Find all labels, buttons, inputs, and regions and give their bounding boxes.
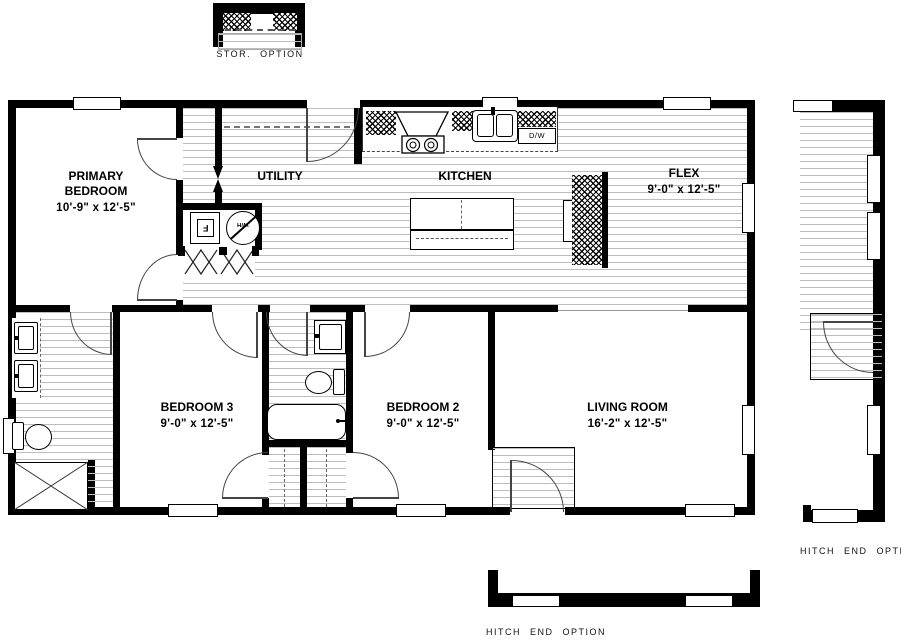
bedroom2-closet-door-leaf xyxy=(353,497,399,499)
bedroom3-label: BEDROOM 3 9'-0" x 12'-5" xyxy=(127,400,267,432)
storage-option-label: STOR. OPTION xyxy=(205,49,315,59)
bath2-door-leaf xyxy=(306,312,308,356)
hitch-right-window-1 xyxy=(867,155,881,203)
storage-option-door-dashed-line xyxy=(225,29,295,31)
kitchen-faucet-icon xyxy=(491,107,495,115)
bedroom2-door-leaf xyxy=(364,312,366,357)
utility-name: UTILITY xyxy=(210,169,350,184)
hitch-right-bottom-window xyxy=(812,509,858,523)
primary-bedroom-wall-mid xyxy=(176,180,183,255)
kitchen-counter-hatch-1 xyxy=(366,111,396,135)
flex-dims: 9'-0" x 12'-5" xyxy=(614,183,754,198)
closet-divider-wall xyxy=(300,445,307,515)
bedroom3-door-arc xyxy=(212,312,258,358)
living-room-label: LIVING ROOM 16'-2" x 12'-5" xyxy=(545,400,710,432)
hitch-right-floor xyxy=(800,112,873,330)
bath2-faucet xyxy=(315,334,319,338)
bedroom2-label: BEDROOM 2 9'-0" x 12'-5" xyxy=(353,400,493,432)
flex-label: FLEX 9'-0" x 12'-5" xyxy=(614,166,754,198)
dishwasher: D/W xyxy=(518,128,556,144)
water-heater-label: W/H xyxy=(227,221,259,227)
bath-bedroom3-wall xyxy=(113,312,120,507)
bath2-toilet-tank xyxy=(333,369,345,395)
primary-bedroom-door-upper-leaf xyxy=(137,138,177,140)
primary-bedroom-door-lower-arc xyxy=(137,254,177,300)
hitch-bottom-stub-right xyxy=(750,570,760,593)
kitchen-island-dashed-front xyxy=(416,238,508,239)
bathroom-door-leaf xyxy=(110,312,112,355)
living-room-dims: 16'-2" x 12'-5" xyxy=(545,417,710,432)
entry-door-leaf xyxy=(510,460,512,512)
primary-bedroom-label: PRIMARY BEDROOM 10'-9" x 12'-5" xyxy=(26,169,166,216)
primary-bedroom-name-line1: PRIMARY xyxy=(26,169,166,184)
outer-wall-bottom xyxy=(8,507,755,515)
kitchen-label: KITCHEN xyxy=(395,169,535,184)
flex-top-window xyxy=(663,97,711,110)
flex-name: FLEX xyxy=(614,166,754,181)
kitchen-sink-basin-right xyxy=(496,114,513,137)
primary-bedroom-dims: 10'-9" x 12'-5" xyxy=(26,201,166,216)
bath2-bedroom2-wall-lower xyxy=(346,498,353,515)
shower-x-icon xyxy=(14,462,88,510)
primary-bedroom-wall-upper xyxy=(176,100,183,138)
living-room-name: LIVING ROOM xyxy=(545,400,710,415)
kitchen-sink-basin-left xyxy=(477,114,494,137)
flex-cabinet-back-panel xyxy=(602,172,608,268)
utility-exterior-door-leaf xyxy=(306,108,308,162)
kitchen-island xyxy=(410,198,514,250)
bath-sink-1-faucet xyxy=(15,336,19,340)
bedroom2-window xyxy=(396,504,446,517)
bedroom2-name: BEDROOM 2 xyxy=(353,400,493,415)
hitch-right-label: HITCH END OPTION xyxy=(800,546,901,556)
hall-wall-seg3 xyxy=(258,305,270,312)
utility-door-gap xyxy=(307,100,360,108)
bath-toilet-bowl xyxy=(25,424,52,450)
hitch-right-window-3 xyxy=(867,405,881,455)
hall-wall-seg2 xyxy=(112,305,212,312)
bedroom3-name: BEDROOM 3 xyxy=(127,400,267,415)
hall-wall-seg1 xyxy=(8,305,70,312)
bath-sink-2-basin xyxy=(18,364,34,388)
kitchen-island-dashed-split xyxy=(461,200,462,229)
bedroom3-door-leaf xyxy=(256,312,258,358)
bifold-jamb-mid xyxy=(219,247,227,255)
utility-label: UTILITY xyxy=(210,169,350,184)
bedroom3-closet-door-leaf xyxy=(222,497,268,499)
hall-wall-seg6 xyxy=(688,305,747,312)
living-bottom-window xyxy=(685,504,735,517)
hitch-bottom-window-1 xyxy=(512,595,560,607)
hitch-right-window-2 xyxy=(867,212,881,260)
flex-cabinet-crosshatch xyxy=(572,175,603,265)
living-right-window xyxy=(742,405,755,455)
primary-bedroom-window xyxy=(73,97,121,110)
bath-toilet-tank xyxy=(12,422,24,450)
dishwasher-label: D/W xyxy=(529,131,545,140)
bathtub-faucet-spout xyxy=(340,420,346,422)
bath2-toilet-bowl xyxy=(305,371,332,394)
bifold-jamb-right xyxy=(252,246,259,256)
floor-plan: STOR. OPTION F W/H xyxy=(0,0,901,642)
hitch-right-top-window xyxy=(793,100,833,112)
primary-closet-wall-lower xyxy=(215,190,222,206)
water-heater-strike xyxy=(226,213,260,244)
bath2-bedroom2-wall-upper xyxy=(346,312,353,453)
hitch-right-entry-door-leaf xyxy=(823,321,873,323)
bedroom3-closet-rod xyxy=(284,449,285,507)
hitch-bottom-window-2 xyxy=(685,595,733,607)
bedroom2-closet-rod xyxy=(326,449,327,507)
hall-wall-seg5 xyxy=(410,305,558,312)
water-heater: W/H xyxy=(226,211,260,245)
bedroom2-door-arc xyxy=(365,312,410,357)
hitch-right-bottom-stub xyxy=(803,505,811,522)
bedroom2-dims: 9'-0" x 12'-5" xyxy=(353,417,493,432)
hall-wall-seg4 xyxy=(310,305,365,312)
furnace-inner: F xyxy=(197,219,214,237)
tub-bottom-wall xyxy=(266,440,346,447)
kitchen-counter-hatch-3 xyxy=(518,111,556,127)
bathtub xyxy=(267,404,346,440)
kitchen-name: KITCHEN xyxy=(395,169,535,184)
bath-vanity-edge xyxy=(40,318,41,398)
bedroom3-bath2-wall-lower xyxy=(262,498,269,515)
bath-sink-1-basin xyxy=(18,326,34,350)
storage-option-steps xyxy=(218,33,302,50)
bedroom3-closet-door-arc xyxy=(222,452,268,498)
primary-bedroom-name-line2: BEDROOM xyxy=(26,184,166,199)
primary-bedroom-door-lower-leaf xyxy=(137,299,177,301)
kitchen-island-divider xyxy=(410,229,514,231)
living-flex-opening-threshold xyxy=(558,310,688,311)
bath2-sink-basin xyxy=(319,324,342,350)
furnace-label: F xyxy=(203,220,209,236)
bedroom2-closet-door-arc xyxy=(353,452,399,498)
bedroom3-window xyxy=(168,504,218,517)
bifold-jamb-left xyxy=(178,246,185,256)
bath-sink-2-faucet xyxy=(15,374,19,378)
bedroom3-dims: 9'-0" x 12'-5" xyxy=(127,417,267,432)
hitch-bottom-stub-left xyxy=(488,570,498,593)
hitch-bottom-label: HITCH END OPTION xyxy=(486,627,596,637)
primary-closet-wall-upper xyxy=(215,107,222,168)
range-hood-icon xyxy=(394,108,452,156)
